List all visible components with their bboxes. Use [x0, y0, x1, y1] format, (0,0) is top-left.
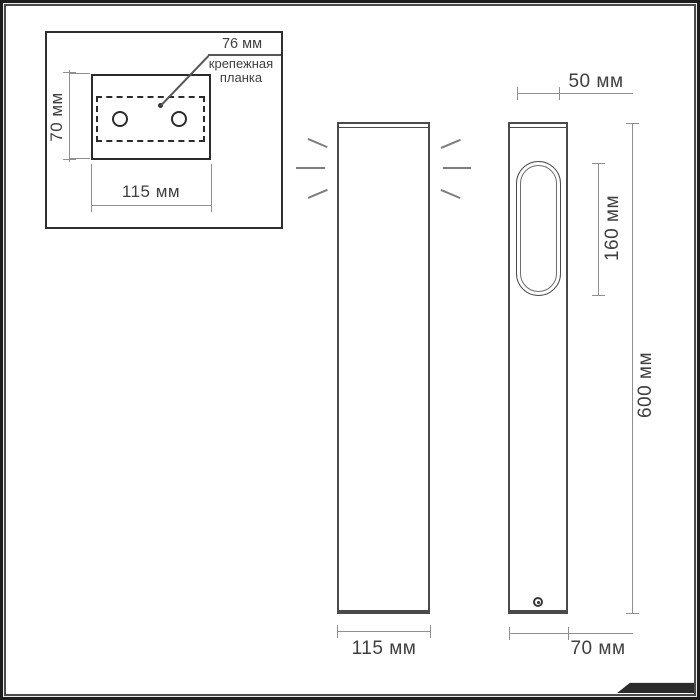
front-width-tick-left — [337, 625, 338, 638]
top-width-label: 50 мм — [568, 71, 623, 93]
front-width-label: 115 мм — [352, 638, 417, 660]
inset-width-dimension-line — [91, 205, 212, 206]
inset-height-tick-bottom — [63, 159, 76, 160]
side-view-top-cap-line — [510, 127, 566, 129]
bollard-front-view-body — [337, 122, 430, 614]
inset-height-dimension-line — [69, 70, 70, 162]
light-ray-right-top — [441, 139, 461, 148]
top-width-tick-right — [559, 87, 560, 100]
window-height-label: 160 мм — [602, 195, 624, 261]
front-view-top-cap-line — [339, 127, 428, 129]
depth-dimension-line — [509, 633, 633, 634]
front-width-tick-right — [430, 625, 431, 638]
depth-label: 70 мм — [570, 638, 625, 660]
side-view-base-line — [510, 610, 566, 612]
base-screw-icon — [533, 597, 543, 607]
inset-width-tick-left — [91, 199, 92, 212]
light-ray-left-bottom — [308, 189, 328, 198]
holes-spacing-label: 76 мм — [222, 36, 262, 52]
corner-decor-shape — [612, 682, 697, 693]
total-height-tick-bottom — [626, 613, 639, 614]
window-height-dimension-line — [598, 163, 599, 296]
window-height-tick-bottom — [592, 295, 605, 296]
inset-width-tick-right — [211, 199, 212, 212]
inset-height-extension-bottom — [69, 158, 90, 159]
base-screw-center-dot — [537, 601, 540, 604]
light-ray-right-bottom — [441, 189, 461, 198]
bracket-caption-line2: планка — [196, 71, 286, 85]
mounting-hole-right — [171, 111, 187, 127]
window-height-tick-top — [592, 163, 605, 164]
light-ray-right-middle — [443, 167, 471, 169]
total-height-dimension-line — [632, 123, 633, 614]
depth-tick-right — [568, 627, 569, 640]
inset-height-extension-top — [69, 73, 90, 74]
inset-plate-height-label: 70 мм — [47, 92, 67, 142]
depth-tick-left — [509, 627, 510, 640]
top-width-dimension-line — [517, 93, 633, 94]
light-ray-left-middle — [296, 167, 325, 169]
mounting-hole-left — [112, 111, 128, 127]
light-ray-left-top — [308, 138, 328, 147]
inset-plate-width-label: 115 мм — [122, 182, 180, 202]
front-width-dimension-line — [337, 631, 431, 632]
top-width-tick-left — [517, 87, 518, 100]
bracket-caption-line1: крепежная — [196, 57, 286, 71]
front-view-base-line — [339, 610, 428, 612]
bracket-caption: крепежная планка — [196, 57, 286, 85]
technical-drawing: 70 мм 115 мм 76 мм крепежная планка 115 … — [0, 0, 700, 700]
total-height-label: 600 мм — [635, 352, 657, 418]
light-window-inner — [520, 165, 557, 292]
total-height-tick-top — [626, 123, 639, 124]
